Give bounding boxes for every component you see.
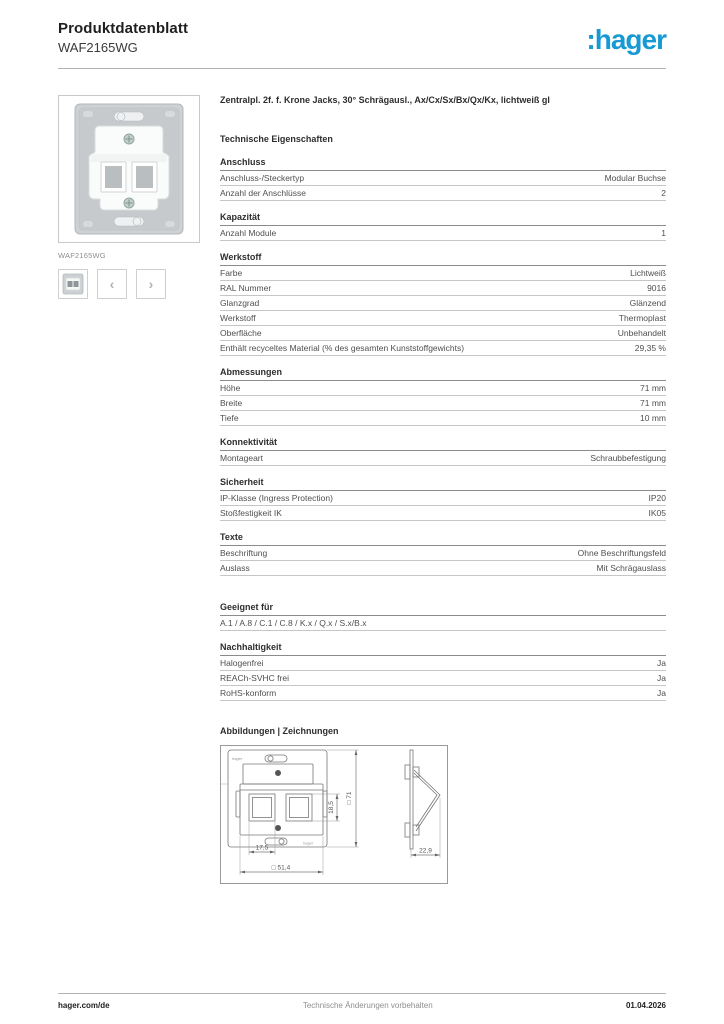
spec-section: AnschlussAnschluss-/SteckertypModular Bu…: [220, 157, 666, 201]
chevron-right-icon: ›: [149, 277, 154, 291]
spec-value: Ja: [647, 673, 666, 683]
spec-row: RoHS-konformJa: [220, 686, 666, 701]
spec-row: Tiefe10 mm: [220, 411, 666, 426]
footer-date: 01.04.2026: [626, 1001, 666, 1010]
spec-label: IP-Klasse (Ingress Protection): [220, 493, 333, 503]
spec-row: REACh-SVHC freiJa: [220, 671, 666, 686]
spec-label: REACh-SVHC frei: [220, 673, 289, 683]
svg-text:17,5: 17,5: [256, 844, 269, 851]
spec-label: Farbe: [220, 268, 242, 278]
tech-sections: AnschlussAnschluss-/SteckertypModular Bu…: [220, 157, 666, 701]
document-type: Produktdatenblatt: [58, 20, 188, 37]
section-heading: Anschluss: [220, 157, 666, 171]
svg-text:□ 51,4: □ 51,4: [272, 864, 291, 871]
spec-label: Höhe: [220, 383, 240, 393]
spec-row: AuslassMit Schrägauslass: [220, 561, 666, 576]
spec-section: SicherheitIP-Klasse (Ingress Protection)…: [220, 477, 666, 521]
technical-drawing-figure: hager hager: [221, 746, 447, 883]
spec-value: Unbehandelt: [608, 328, 666, 338]
product-reference: WAF2165WG: [58, 40, 188, 55]
page-header: Produktdatenblatt WAF2165WG :hager: [58, 20, 666, 55]
section-heading: Nachhaltigkeit: [220, 642, 666, 656]
svg-text:22,9: 22,9: [419, 847, 432, 854]
spec-value: Schraubbefestigung: [580, 453, 666, 463]
section-heading: Texte: [220, 532, 666, 546]
header-divider: [58, 68, 666, 69]
spec-section: KonnektivitätMontageartSchraubbefestigun…: [220, 437, 666, 466]
spec-value: Ja: [647, 658, 666, 668]
spec-value: Mit Schrägauslass: [587, 563, 666, 573]
spec-label: Breite: [220, 398, 242, 408]
spec-value: IK05: [639, 508, 667, 518]
spec-row: HalogenfreiJa: [220, 656, 666, 671]
datasheet-page: Produktdatenblatt WAF2165WG :hager: [0, 0, 724, 1024]
spec-label: Glanzgrad: [220, 298, 259, 308]
product-photo-image: [59, 96, 199, 242]
product-title: Zentralpl. 2f. f. Krone Jacks, 30° Schrä…: [220, 95, 666, 107]
svg-text:hager: hager: [232, 756, 243, 761]
content: WAF2165WG ‹ › Ze: [58, 95, 666, 884]
spec-value: 71 mm: [630, 398, 666, 408]
hager-logo: :hager: [586, 26, 666, 54]
section-heading: Konnektivität: [220, 437, 666, 451]
spec-row: Anzahl Module1: [220, 226, 666, 241]
spec-value: 1: [651, 228, 666, 238]
spec-value: Modular Buchse: [595, 173, 666, 183]
spec-value: Lichtweiß: [620, 268, 666, 278]
spec-value: 10 mm: [630, 413, 666, 423]
section-heading: Geeignet für: [220, 602, 666, 616]
spec-row: Höhe71 mm: [220, 381, 666, 396]
spec-label: Beschriftung: [220, 548, 267, 558]
technical-drawing-box: hager hager: [220, 745, 448, 884]
svg-text:hager: hager: [303, 840, 314, 845]
spec-label: Tiefe: [220, 413, 239, 423]
spec-value: Ja: [647, 688, 666, 698]
thumbnail-strip: ‹ ›: [58, 269, 200, 299]
spec-section: NachhaltigkeitHalogenfreiJaREACh-SVHC fr…: [220, 642, 666, 701]
spec-value: Thermoplast: [609, 313, 666, 323]
tech-properties-heading: Technische Eigenschaften: [220, 134, 666, 144]
spec-section: TexteBeschriftungOhne BeschriftungsfeldA…: [220, 532, 666, 576]
spec-row: IP-Klasse (Ingress Protection)IP20: [220, 491, 666, 506]
spec-label: Halogenfrei: [220, 658, 263, 668]
spec-row: BeschriftungOhne Beschriftungsfeld: [220, 546, 666, 561]
spec-row: WerkstoffThermoplast: [220, 311, 666, 326]
svg-text:□ 71: □ 71: [346, 791, 353, 804]
spec-row: Enthält recyceltes Material (% des gesam…: [220, 341, 666, 356]
photo-caption: WAF2165WG: [58, 251, 200, 260]
spec-label: Oberfläche: [220, 328, 262, 338]
spec-row: Anschluss-/SteckertypModular Buchse: [220, 171, 666, 186]
spec-label: Anzahl Module: [220, 228, 276, 238]
spec-value: 71 mm: [630, 383, 666, 393]
thumbnail-product[interactable]: [58, 269, 88, 299]
spec-row: Anzahl der Anschlüsse2: [220, 186, 666, 201]
section-heading: Sicherheit: [220, 477, 666, 491]
spec-section: WerkstoffFarbeLichtweißRAL Nummer9016Gla…: [220, 252, 666, 356]
spec-label: Werkstoff: [220, 313, 256, 323]
spec-label: A.1 / A.8 / C.1 / C.8 / K.x / Q.x / S.x/…: [220, 618, 366, 628]
spec-label: Auslass: [220, 563, 250, 573]
header-titles: Produktdatenblatt WAF2165WG: [58, 20, 188, 55]
spec-row: RAL Nummer9016: [220, 281, 666, 296]
main-column: Zentralpl. 2f. f. Krone Jacks, 30° Schrä…: [220, 95, 666, 884]
spec-row: FarbeLichtweiß: [220, 266, 666, 281]
next-image-button[interactable]: ›: [136, 269, 166, 299]
spec-row: Stoßfestigkeit IKIK05: [220, 506, 666, 521]
spec-value: 29,35 %: [625, 343, 666, 353]
spec-value: Glänzend: [620, 298, 666, 308]
spec-row: Breite71 mm: [220, 396, 666, 411]
chevron-left-icon: ‹: [110, 277, 115, 291]
spec-row: GlanzgradGlänzend: [220, 296, 666, 311]
spec-row: A.1 / A.8 / C.1 / C.8 / K.x / Q.x / S.x/…: [220, 616, 666, 631]
section-heading: Werkstoff: [220, 252, 666, 266]
product-photo-frame: [58, 95, 200, 243]
spec-section: AbmessungenHöhe71 mmBreite71 mmTiefe10 m…: [220, 367, 666, 426]
sidebar: WAF2165WG ‹ ›: [58, 95, 200, 884]
spec-label: Anschluss-/Steckertyp: [220, 173, 304, 183]
svg-text:18,5: 18,5: [328, 800, 335, 813]
footer-notice: Technische Änderungen vorbehalten: [303, 1001, 433, 1010]
spec-row: OberflächeUnbehandelt: [220, 326, 666, 341]
spec-section: KapazitätAnzahl Module1: [220, 212, 666, 241]
spec-label: RAL Nummer: [220, 283, 271, 293]
spec-value: 2: [651, 188, 666, 198]
spec-label: Montageart: [220, 453, 263, 463]
spec-value: Ohne Beschriftungsfeld: [568, 548, 666, 558]
spec-row: MontageartSchraubbefestigung: [220, 451, 666, 466]
drawings-heading: Abbildungen | Zeichnungen: [220, 726, 666, 736]
spec-section: Geeignet fürA.1 / A.8 / C.1 / C.8 / K.x …: [220, 602, 666, 631]
spec-value: IP20: [639, 493, 667, 503]
section-heading: Kapazität: [220, 212, 666, 226]
spec-label: Enthält recyceltes Material (% des gesam…: [220, 343, 464, 353]
page-footer: hager.com/de Technische Änderungen vorbe…: [58, 993, 666, 1010]
spec-value: 9016: [637, 283, 666, 293]
product-thumbnail-icon: [62, 273, 84, 295]
spec-label: Anzahl der Anschlüsse: [220, 188, 306, 198]
footer-website-link[interactable]: hager.com/de: [58, 1001, 110, 1010]
spec-label: RoHS-konform: [220, 688, 276, 698]
prev-image-button[interactable]: ‹: [97, 269, 127, 299]
spec-label: Stoßfestigkeit IK: [220, 508, 282, 518]
section-heading: Abmessungen: [220, 367, 666, 381]
